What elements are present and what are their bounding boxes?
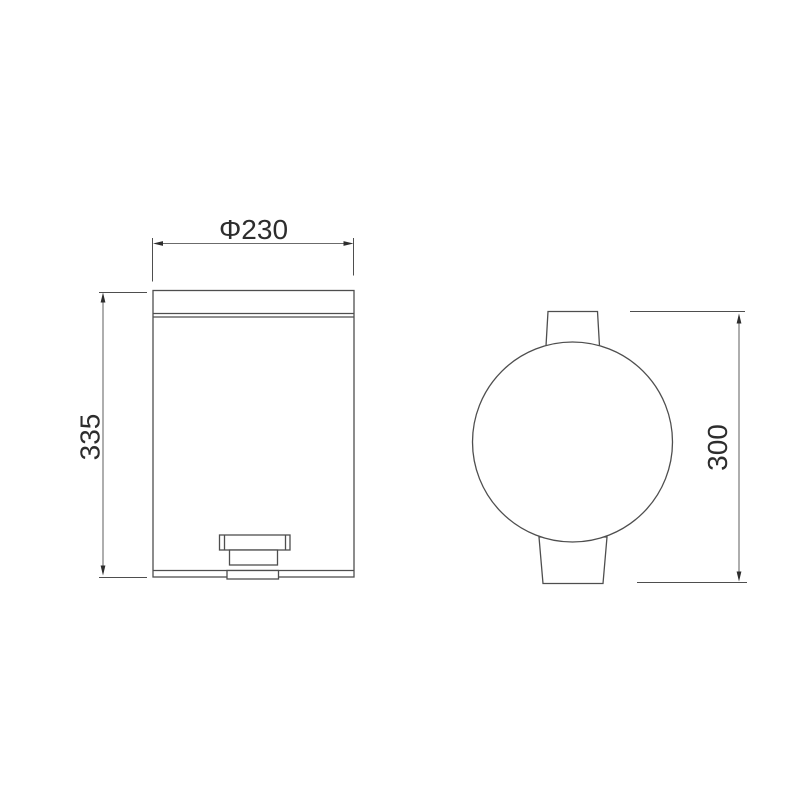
height-front-dimension-label: 335 — [75, 414, 106, 461]
pedal-foot — [227, 571, 279, 580]
pedal-tab — [539, 537, 607, 584]
diameter-arrow-right — [344, 241, 354, 246]
dimension-height-front: 335 — [75, 293, 148, 578]
dimension-diameter: Φ230 — [153, 214, 354, 282]
diameter-dimension-label: Φ230 — [219, 214, 288, 245]
pedal-plate — [220, 535, 291, 550]
front-view — [153, 291, 354, 580]
diameter-arrow-left — [153, 241, 163, 246]
height-top-arrow-bottom — [737, 572, 742, 582]
height-top-arrow-top — [737, 314, 742, 324]
hinge-tab — [546, 312, 600, 347]
bin-circle-outline — [473, 342, 673, 542]
bin-body-outline — [153, 291, 354, 578]
drawing-canvas: Φ230 335 300 — [0, 0, 800, 800]
pedal-bin-technical-drawing: Φ230 335 300 — [0, 0, 800, 800]
height-top-dimension-label: 300 — [702, 424, 733, 471]
height-front-arrow-bottom — [101, 566, 106, 576]
top-view — [473, 312, 673, 584]
pedal-arm — [230, 550, 278, 565]
height-front-arrow-top — [101, 293, 106, 303]
